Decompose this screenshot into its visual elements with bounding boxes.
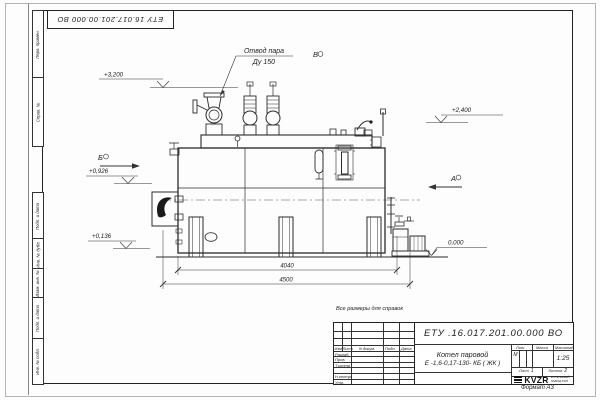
- callout-steam-line1: Отвод пара: [244, 47, 284, 55]
- platform-stub-1: [330, 129, 336, 135]
- level-gauge-tube: [315, 150, 323, 179]
- safety-valve-1: [243, 82, 257, 135]
- manhole: [205, 233, 217, 242]
- gauge-pin: [381, 109, 386, 136]
- elevation-ground: 0,000: [448, 240, 464, 247]
- tb-doc-number: ЕТУ .16.017.201.00.000 ВО: [414, 323, 573, 344]
- lever-valve: [355, 120, 373, 136]
- view-label-v: В: [313, 50, 318, 59]
- elevation-marks: [86, 79, 503, 256]
- boiler-geometry: [152, 82, 448, 257]
- tb-lit-label: Лит.: [516, 345, 525, 350]
- tb-row-nkontr: Н.контр: [335, 374, 351, 379]
- boiler-body: [178, 148, 385, 253]
- safety-valve-2: [266, 82, 280, 135]
- view-b-arrow: [132, 163, 140, 169]
- callout-steam-line2: Ду 150: [252, 59, 275, 66]
- elevation-right: +2,400: [452, 107, 472, 114]
- tb-header-list: Лист: [343, 346, 353, 351]
- tb-header-podp: Подп.: [385, 346, 396, 351]
- tb-lit-value: М: [512, 352, 519, 358]
- blowdown-pipe: [387, 197, 395, 234]
- logo-bars-icon: [514, 376, 522, 383]
- reference-note: Все размеры для справок: [336, 306, 403, 312]
- tb-header-doc: N докум.: [359, 346, 375, 351]
- format-label: Формат А3: [521, 385, 554, 391]
- elevation-top: +3,200: [104, 72, 124, 79]
- air-vent: [235, 136, 240, 147]
- dimension-overall: 4500: [279, 278, 293, 284]
- right-wall-stub: [370, 137, 381, 147]
- elevation-mid: +0,926: [89, 168, 109, 175]
- tb-list-label: Лист: [519, 369, 529, 373]
- logo-text: KVZR: [524, 375, 548, 385]
- tb-product-line1: Котел паровой: [437, 350, 489, 359]
- view-label-b: Б: [98, 153, 103, 162]
- logo-subtext-line2: ЗАВОД РЭП: [551, 380, 570, 384]
- support-legs: [189, 217, 381, 257]
- tb-scale-label: Масштаб: [555, 345, 574, 350]
- view-label-a: А: [450, 174, 456, 183]
- tb-header-data: Дата: [401, 346, 412, 351]
- tb-product-line2: Е -1,6-0,17-130- КБ ( ЖК ): [425, 360, 500, 367]
- manufacturer-logo: KVZR КОТЕЛЬНЫЙ ЗАВОД РЭП: [511, 376, 573, 385]
- steam-outlet-valve: [193, 93, 224, 135]
- elevation-low: +0,136: [92, 233, 112, 240]
- logo-subtext: КОТЕЛЬНЫЙ ЗАВОД РЭП: [551, 376, 570, 383]
- tb-row-prov: Пров.: [335, 357, 346, 362]
- tb-row-razrab: Разраб.: [335, 352, 349, 357]
- tb-list-value: 1: [531, 368, 534, 374]
- tb-product-name: Котел паровой Е -1,6-0,17-130- КБ ( ЖК ): [414, 345, 511, 372]
- tb-header-izm: Изм: [335, 346, 342, 351]
- drawing-sheet: Перв. примен. Справ. № Подп. и дата Инв.…: [0, 0, 600, 400]
- water-level-column: [334, 145, 355, 180]
- tb-scale-value: 1:25: [553, 351, 573, 366]
- platform-stub-2: [341, 130, 346, 135]
- dimension-inner: 4040: [280, 264, 294, 270]
- tb-row-tkontr: Т.контр: [335, 363, 350, 368]
- tb-listov-label: Листов: [548, 369, 562, 373]
- tb-listov-value: 2: [564, 368, 567, 374]
- tb-row-utv: Утв.: [335, 380, 344, 385]
- view-a-arrow: [428, 184, 436, 190]
- title-block: Изм Лист N докум. Подп. Дата Разраб. Про…: [333, 322, 574, 385]
- tb-mass-label: Масса: [536, 345, 548, 350]
- feed-pump: [392, 216, 429, 256]
